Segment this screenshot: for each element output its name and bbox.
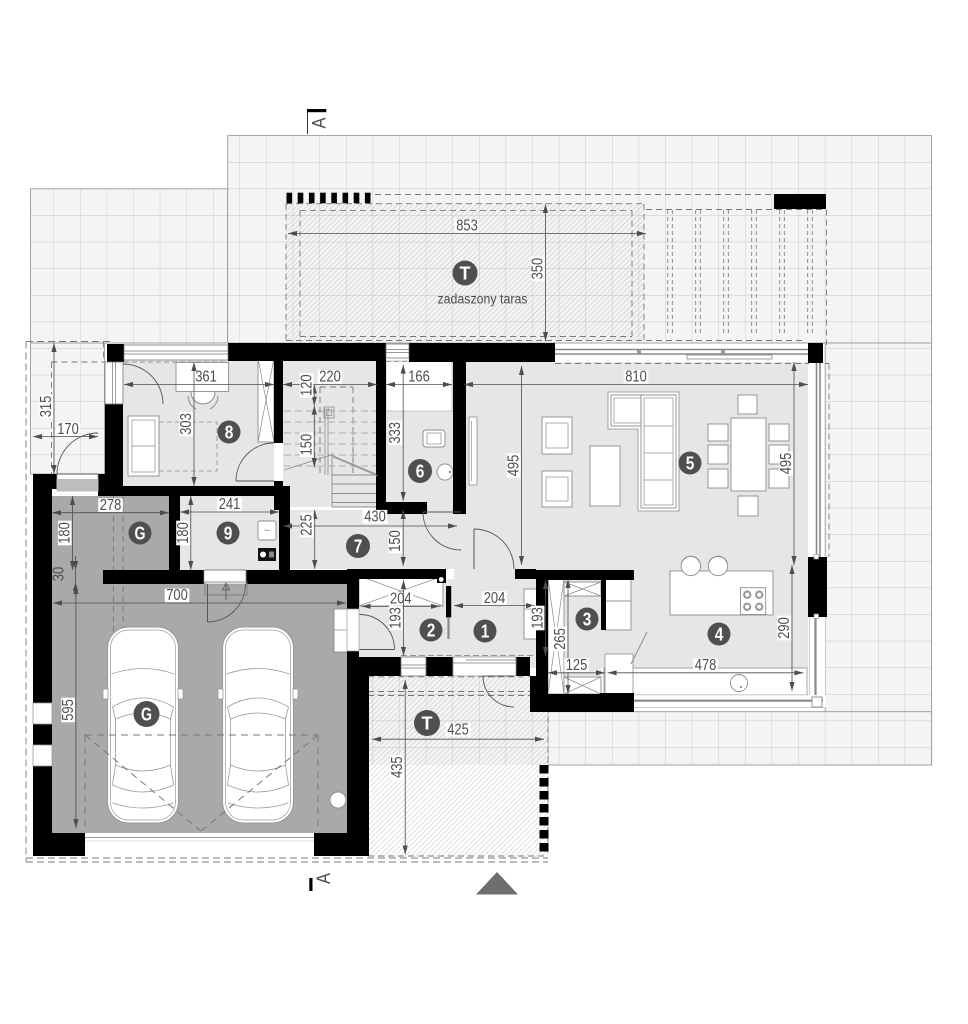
svg-text:3: 3 — [583, 610, 592, 630]
svg-text:G: G — [135, 524, 146, 544]
svg-text:193: 193 — [530, 607, 547, 629]
svg-text:4: 4 — [715, 625, 724, 645]
svg-text:125: 125 — [566, 657, 588, 674]
svg-text:7: 7 — [354, 537, 363, 557]
svg-text:350: 350 — [530, 258, 547, 280]
svg-text:T: T — [422, 714, 433, 734]
svg-text:5: 5 — [686, 454, 695, 474]
svg-text:180: 180 — [175, 522, 192, 544]
svg-text:30: 30 — [51, 567, 68, 582]
svg-text:853: 853 — [456, 218, 478, 235]
svg-text:204: 204 — [484, 590, 506, 607]
svg-text:333: 333 — [387, 422, 404, 444]
svg-text:361: 361 — [195, 369, 217, 386]
svg-text:265: 265 — [552, 628, 569, 650]
svg-text:166: 166 — [408, 369, 430, 386]
svg-text:170: 170 — [57, 421, 79, 438]
svg-text:241: 241 — [219, 496, 241, 513]
svg-text:180: 180 — [57, 522, 74, 544]
svg-text:315: 315 — [38, 396, 55, 418]
svg-text:478: 478 — [695, 657, 717, 674]
svg-text:425: 425 — [447, 722, 469, 739]
svg-text:430: 430 — [364, 509, 386, 526]
svg-text:2: 2 — [427, 621, 436, 641]
svg-text:6: 6 — [416, 462, 425, 482]
svg-text:303: 303 — [178, 413, 195, 435]
svg-text:290: 290 — [776, 617, 793, 639]
svg-text:9: 9 — [224, 524, 233, 544]
svg-text:120: 120 — [298, 374, 315, 396]
svg-text:495: 495 — [778, 453, 795, 475]
svg-text:435: 435 — [389, 756, 406, 778]
svg-text:G: G — [141, 705, 152, 725]
svg-text:278: 278 — [100, 497, 122, 514]
svg-text:595: 595 — [60, 699, 77, 721]
svg-text:A: A — [314, 873, 335, 884]
svg-text:A: A — [310, 117, 331, 128]
svg-text:150: 150 — [298, 434, 315, 456]
svg-text:1: 1 — [481, 622, 490, 642]
svg-text:193: 193 — [388, 607, 405, 629]
svg-text:495: 495 — [506, 455, 523, 477]
svg-text:~: ~ — [264, 525, 270, 537]
svg-text:T: T — [460, 264, 471, 284]
svg-text:8: 8 — [225, 423, 234, 443]
svg-text:204: 204 — [390, 591, 412, 608]
svg-text:225: 225 — [299, 514, 316, 536]
svg-text:810: 810 — [625, 369, 647, 386]
svg-text:700: 700 — [166, 587, 188, 604]
svg-text:220: 220 — [319, 369, 341, 386]
svg-text:zadaszony taras: zadaszony taras — [438, 292, 528, 307]
svg-text:150: 150 — [387, 530, 404, 552]
